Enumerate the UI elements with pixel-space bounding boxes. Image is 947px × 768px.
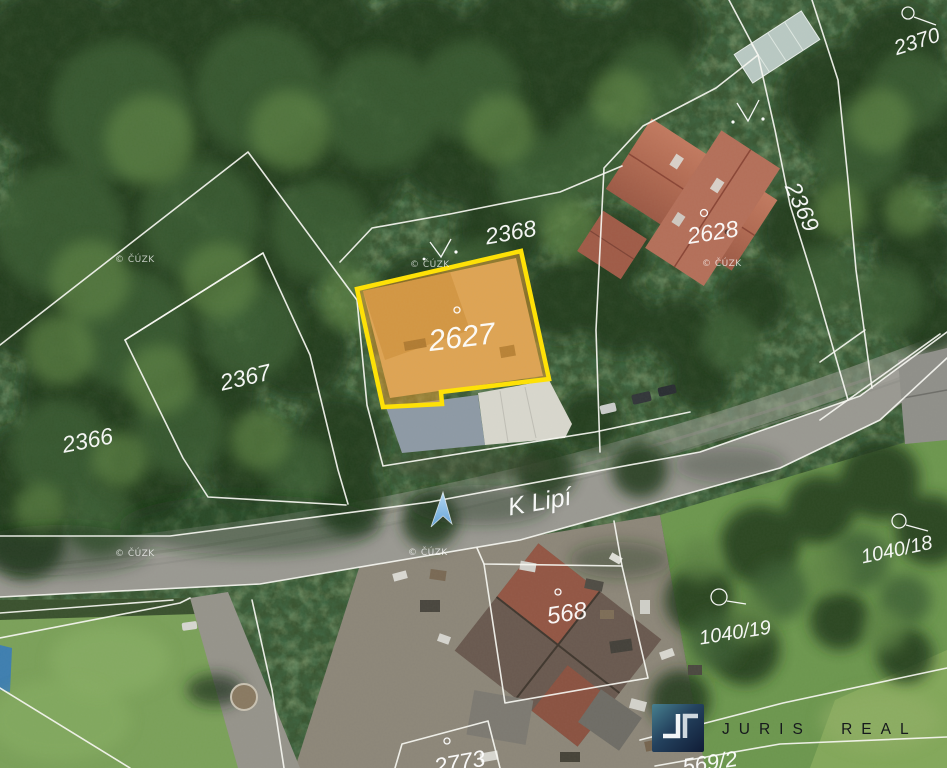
photo-grain xyxy=(0,0,947,768)
map-canvas: 2370 2369 2628 2368 2627 2367 2366 1040/… xyxy=(0,0,947,768)
cadastral-map-image[interactable]: 2370 2369 2628 2368 2627 2367 2366 1040/… xyxy=(0,0,947,768)
logo-text: JURIS REAL xyxy=(722,721,918,738)
